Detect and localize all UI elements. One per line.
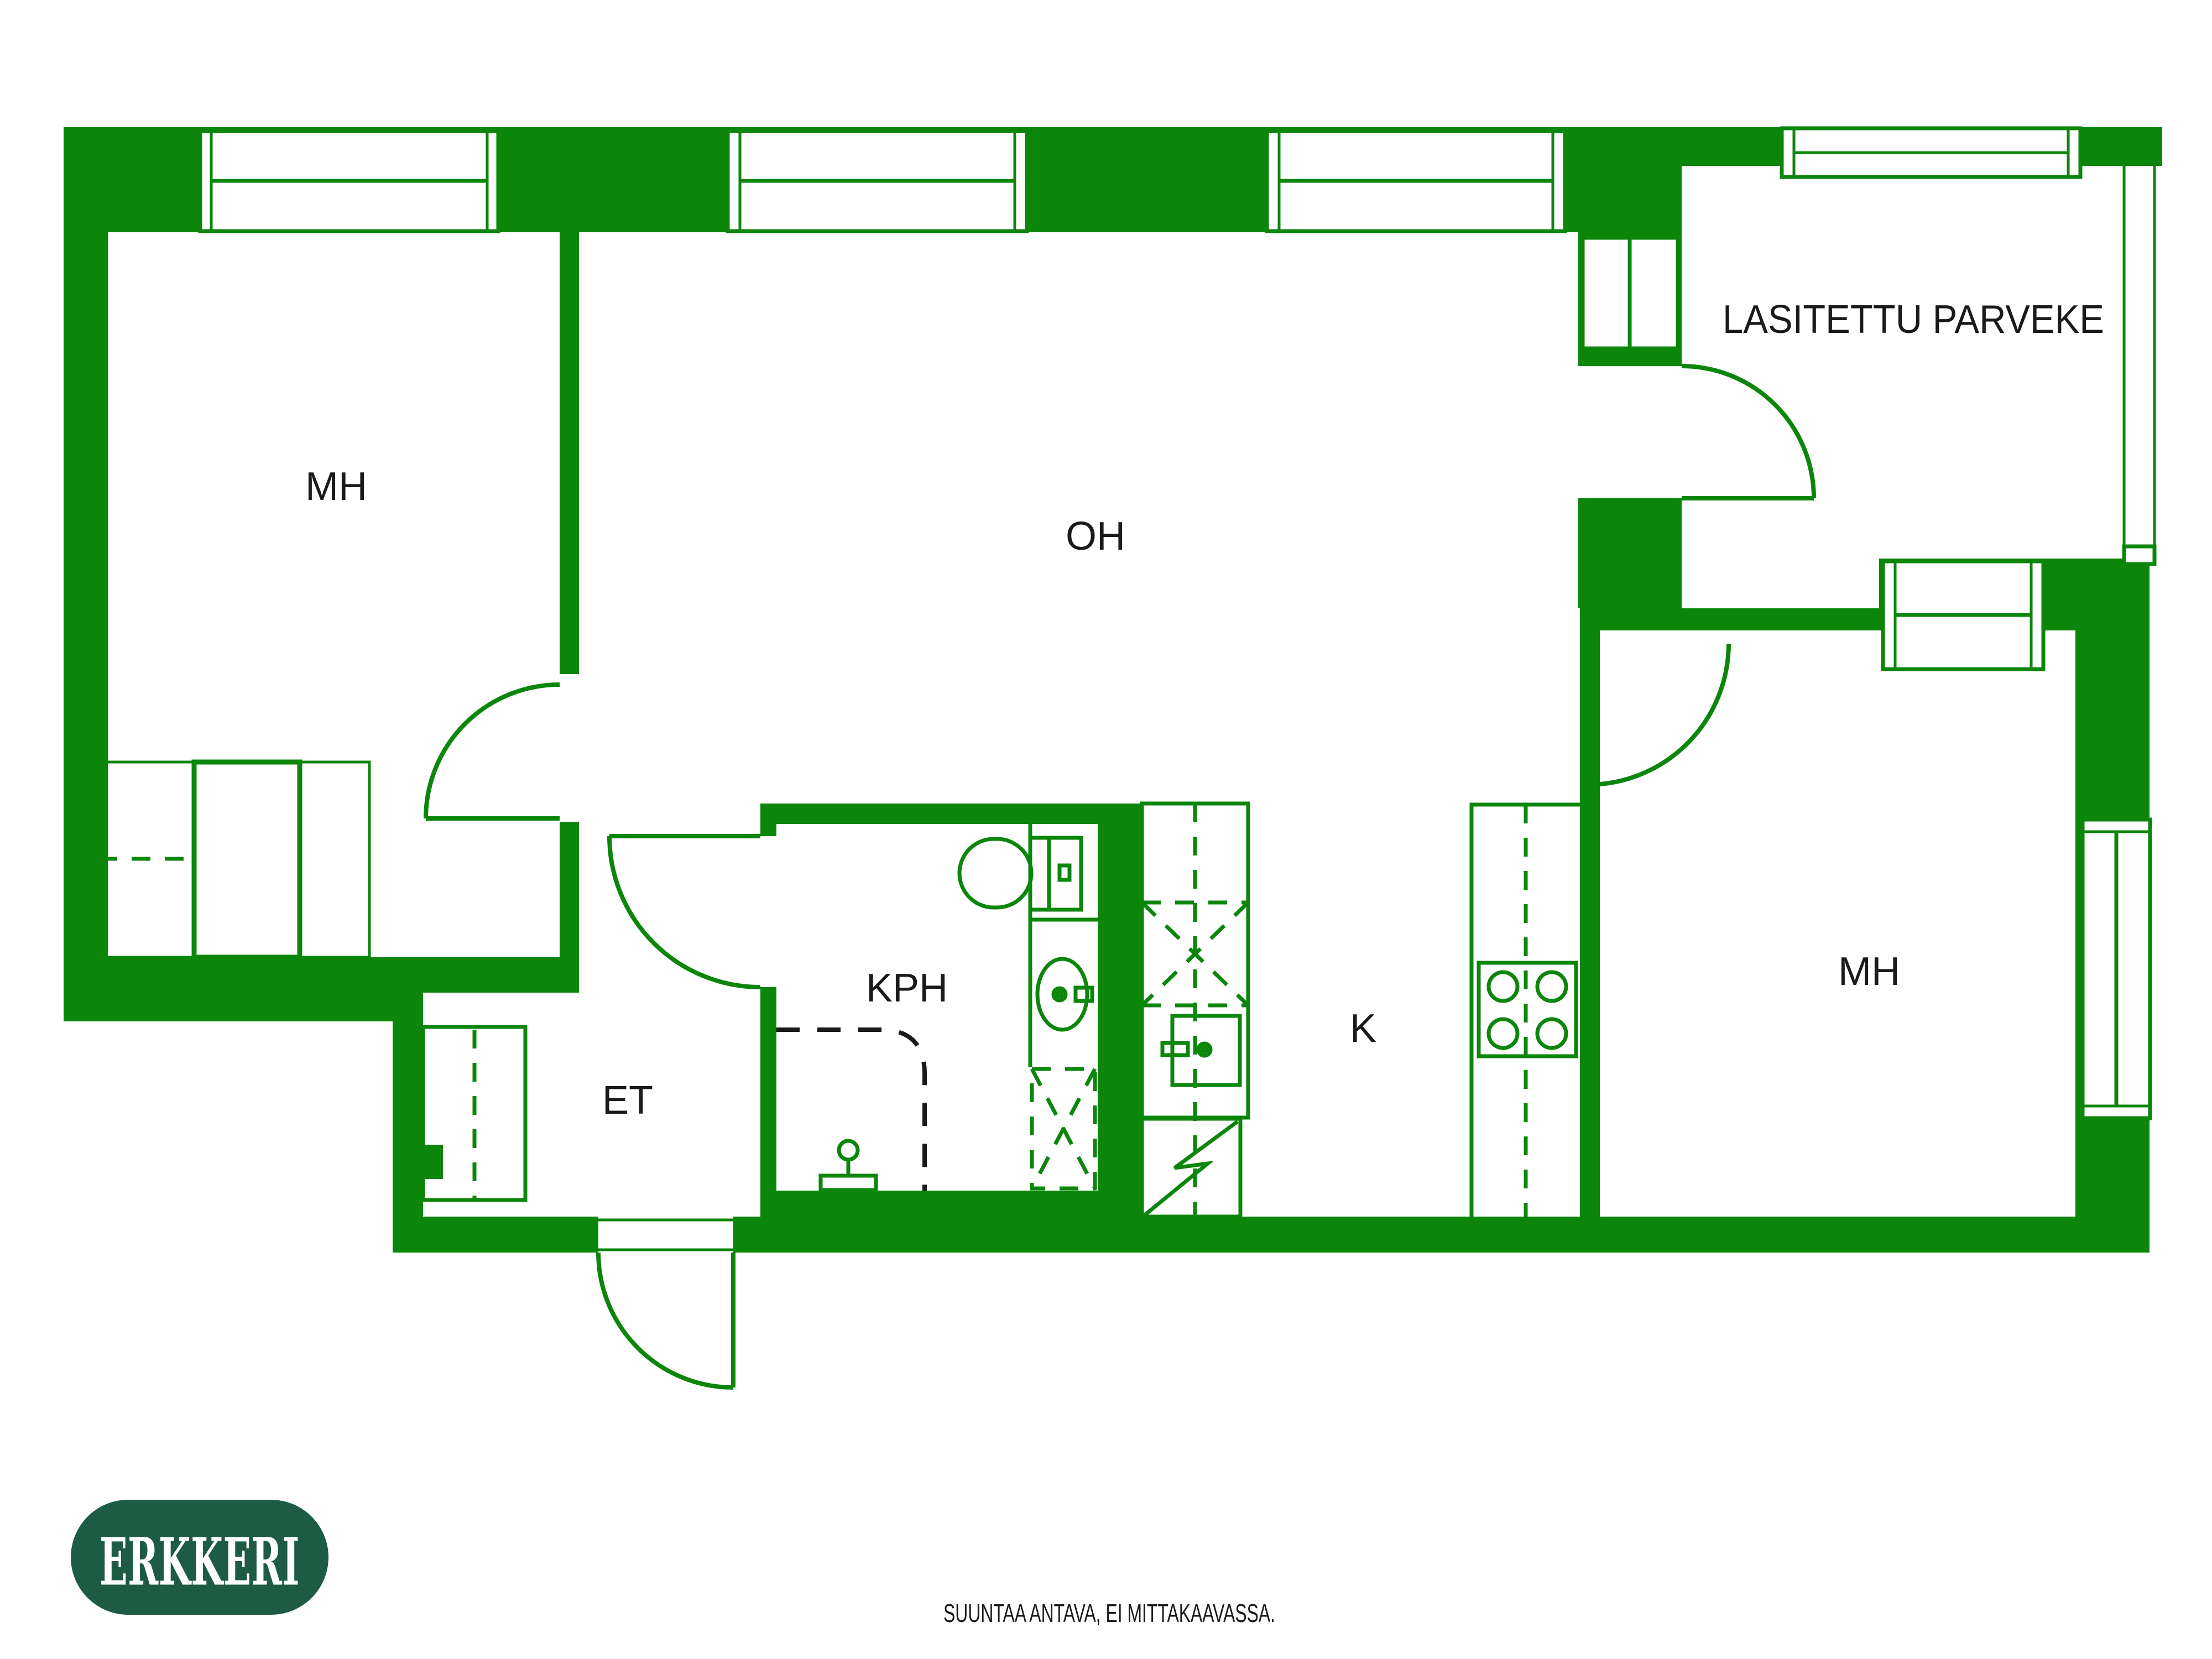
wardrobe-mh-left — [94, 762, 369, 957]
wall-mh-bottom-thick — [64, 957, 423, 1021]
room-label-k: K — [1350, 1006, 1376, 1051]
floor-plan-page: MH OH LASITETTU PARVEKE MH KPH ET K ERKK… — [0, 0, 2212, 1659]
logo: ERKKERI — [71, 1500, 328, 1615]
shower-enclosure-dashed — [776, 1030, 925, 1191]
window-mh-right — [2083, 820, 2150, 1118]
window-oh-top-2 — [1267, 131, 1565, 231]
door-balcony — [1682, 366, 1814, 498]
floor-drain-icon — [821, 1141, 876, 1190]
washing-machine-space — [1032, 1069, 1095, 1188]
door-kph — [609, 836, 760, 987]
wall-kph-top — [760, 804, 1098, 824]
window-balcony-top — [1782, 128, 2080, 177]
bathroom-sink-fixture — [1037, 959, 1092, 1030]
wall-balcony-corner-block — [2124, 127, 2162, 166]
toilet-fixture — [959, 838, 1081, 910]
disclaimer-text: SUUNTAA ANTAVA, EI MITTAKAAVASSA. — [943, 1599, 1275, 1627]
wall-left — [64, 127, 108, 1021]
walls — [64, 127, 2162, 1253]
kitchen-cabinet-zigzag — [1142, 1119, 1240, 1217]
door-mh-left — [426, 685, 560, 818]
window-oh-to-balcony — [1583, 238, 1678, 348]
opening-kph-door — [760, 836, 776, 987]
room-label-mh-right: MH — [1838, 950, 1900, 994]
wall-kph-left-b — [760, 987, 776, 1191]
wall-bottom-k-mh — [1140, 1217, 2150, 1253]
window-mh-left-top — [200, 131, 498, 231]
door-mh-right — [1588, 631, 1729, 785]
wall-kph-right — [1098, 804, 1140, 1218]
room-label-mh-left: MH — [305, 465, 367, 509]
room-label-balcony: LASITETTU PARVEKE — [1723, 298, 2104, 342]
wall-mh-left-right-b — [560, 822, 579, 957]
room-label-et: ET — [602, 1078, 653, 1123]
wall-mh-right-top-thin — [1580, 608, 1879, 630]
wall-bottom-kph — [760, 1191, 1140, 1253]
logo-text: ERKKERI — [100, 1524, 300, 1600]
window-balcony-to-mh — [1883, 561, 2043, 669]
balcony-glazing-right — [2124, 166, 2154, 564]
wall-kph-left-a — [760, 824, 776, 836]
kitchen-counter-right — [1472, 805, 1580, 1217]
opening-mh-left-door — [560, 674, 579, 822]
kitchen-sink-fixture — [1162, 1016, 1240, 1085]
entry-closet — [423, 1027, 525, 1200]
opening-balcony-door — [1578, 366, 1682, 498]
room-label-oh: OH — [1066, 514, 1125, 559]
wall-mh-bottom-thin — [423, 957, 579, 993]
room-label-kph: KPH — [866, 966, 948, 1010]
opening-front-door — [598, 1217, 733, 1253]
wall-mh-left-right-a — [560, 232, 579, 674]
window-oh-top-1 — [728, 131, 1027, 231]
floor-plan-drawing: MH OH LASITETTU PARVEKE MH KPH ET K ERKK… — [0, 0, 2212, 1659]
